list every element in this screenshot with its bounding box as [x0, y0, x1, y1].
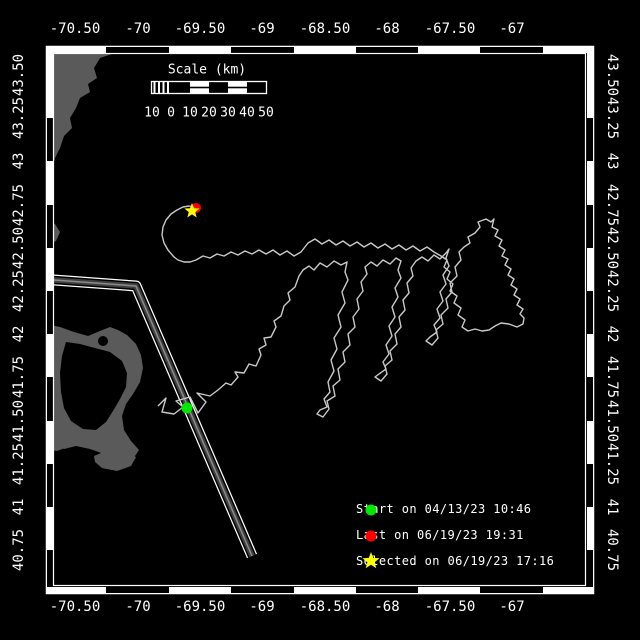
scale-bar: [152, 82, 267, 94]
axis-tick-label: 41: [604, 499, 620, 516]
start-dot-icon: [356, 500, 386, 520]
axis-tick-label: -69.50: [175, 21, 226, 37]
axis-tick-label: -67: [499, 599, 524, 615]
axis-tick-label: -70.50: [50, 599, 101, 615]
axis-tick-label: 30: [220, 106, 236, 121]
axis-tick-label: 10: [182, 106, 198, 121]
axis-tick-label: 42.50: [604, 227, 620, 269]
axis-tick-label: -69: [249, 599, 274, 615]
axis-tick-label: -68.50: [300, 21, 351, 37]
axis-tick-label: 42.75: [604, 184, 620, 226]
axis-tick-label: 41.75: [604, 356, 620, 398]
axis-tick-label: -70.50: [50, 21, 101, 37]
scale-bar-title: Scale (km): [168, 63, 246, 78]
axis-tick-label: 41.75: [11, 356, 27, 398]
axis-tick-label: 43: [604, 153, 620, 170]
axis-tick-label: 41: [11, 499, 27, 516]
axis-tick-label: 41.50: [11, 400, 27, 442]
legend-item-start: Start on 04/13/23 10:46: [356, 500, 531, 518]
last-dot-icon: [356, 526, 386, 546]
axis-tick-label: 43.50: [11, 54, 27, 96]
axis-tick-label: -67.50: [425, 21, 476, 37]
axis-tick-label: 40: [239, 106, 255, 121]
axis-tick-label: -68: [374, 599, 399, 615]
axis-tick-label: -67.50: [425, 599, 476, 615]
axis-tick-label: 43.25: [11, 97, 27, 139]
axis-tick-label: 42: [11, 326, 27, 343]
axis-tick-label: 40.75: [604, 529, 620, 571]
legend: Start on 04/13/23 10:46 Last on 06/19/23…: [356, 495, 588, 577]
axis-tick-label: 42.25: [11, 270, 27, 312]
coastline-northeast: [46, 46, 118, 196]
axis-tick-label: 20: [201, 106, 217, 121]
axis-tick-label: -68.50: [300, 599, 351, 615]
legend-item-selected: Selected on 06/19/23 17:16: [356, 552, 554, 570]
legend-item-last: Last on 06/19/23 19:31: [356, 526, 524, 544]
glider-track-line: [158, 206, 524, 417]
axis-tick-label: 42.25: [604, 270, 620, 312]
axis-tick-label: 41.25: [604, 443, 620, 485]
axis-tick-label: 42: [604, 326, 620, 343]
axis-tick-label: 50: [258, 106, 274, 121]
axis-tick-label: -69.50: [175, 599, 226, 615]
axis-tick-label: -69: [249, 21, 274, 37]
axis-tick-label: 41.25: [11, 443, 27, 485]
axis-tick-label: 42.75: [11, 184, 27, 226]
axis-tick-label: 43.25: [604, 97, 620, 139]
axis-tick-label: 43: [11, 153, 27, 170]
axis-tick-label: 41.50: [604, 400, 620, 442]
axis-tick-label: -70: [125, 599, 150, 615]
glider-track-map: -70.50-70-69.50-69-68.50-68-67.50-67 -70…: [0, 0, 640, 640]
axis-tick-label: -70: [125, 21, 150, 37]
selected-star-icon: [356, 552, 386, 572]
axis-tick-label: 0: [167, 106, 175, 121]
start-position-marker: [182, 403, 193, 414]
axis-tick-label: 10: [144, 106, 160, 121]
axis-tick-label: -67: [499, 21, 524, 37]
axis-tick-label: 42.50: [11, 227, 27, 269]
axis-tick-label: -68: [374, 21, 399, 37]
axis-tick-label: 40.75: [11, 529, 27, 571]
axis-tick-label: 43.50: [604, 54, 620, 96]
cape-tip-curl: [98, 336, 108, 346]
